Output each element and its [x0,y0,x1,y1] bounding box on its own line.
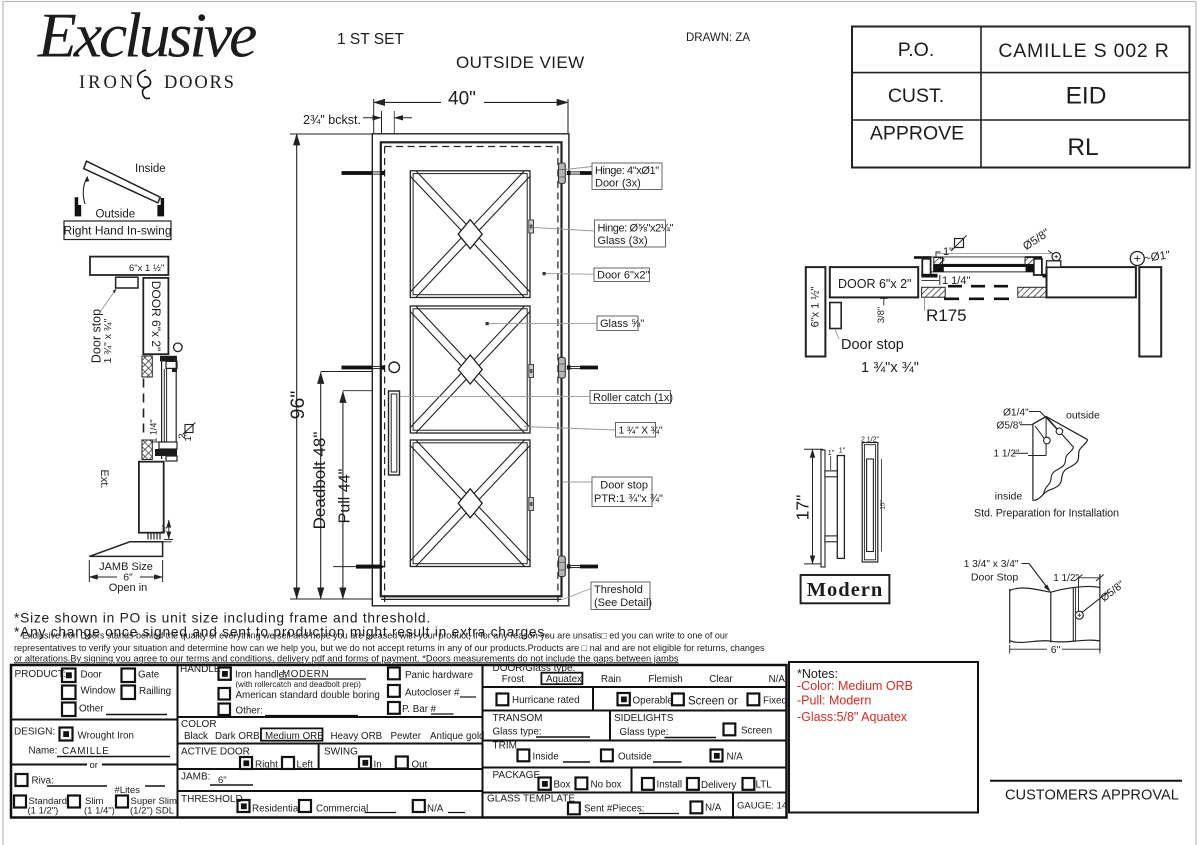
svg-text:CUST.: CUST. [888,85,944,107]
svg-text:Ø5/8": Ø5/8" [1021,227,1052,253]
svg-text:DOOR 6"x 2": DOOR 6"x 2" [149,281,163,352]
svg-text:N/A: N/A [427,804,444,815]
svg-text:Install: Install [657,780,683,791]
svg-text:1 1/4": 1 1/4" [942,275,970,287]
svg-text:outside: outside [1066,410,1100,422]
svg-text:Railling: Railling [139,686,171,697]
svg-text:Iron handle:: Iron handle: [235,670,287,681]
svg-text:Outside: Outside [618,752,652,763]
svg-text:Right: Right [255,760,278,771]
svg-text:MODERN: MODERN [282,669,329,680]
svg-text:N/A: N/A [769,674,786,685]
svg-text:Deadbolt 48": Deadbolt 48" [310,432,329,530]
svg-text:Hinge: Ø⅝"x2¼": Hinge: Ø⅝"x2¼" [598,222,674,234]
svg-text:American standard double borin: American standard double boring [236,690,380,701]
svg-text:Glass ⅝": Glass ⅝" [600,318,644,330]
svg-text:GAUGE: 14: GAUGE: 14 [737,801,787,812]
svg-text:IRON: IRON [79,73,136,93]
svg-text:PACKAGE: PACKAGE [493,770,541,781]
svg-text:N/A: N/A [727,752,744,763]
svg-text:Modern: Modern [807,579,884,601]
svg-text:DRAWN: ZA: DRAWN: ZA [686,32,750,44]
svg-text:¾": ¾" [162,524,169,533]
svg-text:Inside: Inside [533,752,560,763]
svg-text:6": 6" [1051,644,1061,656]
svg-text:3/8": 3/8" [876,307,887,324]
svg-text:N/A: N/A [705,803,722,814]
svg-text:1 3/4" x 3/4": 1 3/4" x 3/4" [964,559,1019,570]
svg-text:COLOR: COLOR [181,719,217,730]
svg-text:Delivery: Delivery [701,780,736,791]
svg-text:6"x 1 ½": 6"x 1 ½" [129,263,164,274]
svg-text:LTL: LTL [756,780,773,791]
svg-text:Out: Out [412,760,428,771]
svg-text:1 ST SET: 1 ST SET [337,31,404,48]
svg-text:1": 1" [828,448,835,457]
svg-text:In: In [374,760,382,771]
svg-text:EID: EID [1066,83,1107,110]
svg-text:Clear: Clear [709,674,733,685]
svg-text:JAMB:: JAMB: [181,772,210,783]
svg-text:Hurricane rated: Hurricane rated [512,695,580,706]
svg-text:Pull 44": Pull 44" [337,469,354,524]
svg-text:Door stop: Door stop [600,479,648,491]
svg-text:CAMILLE: CAMILLE [62,746,110,757]
svg-text:THRESHOLD: THRESHOLD [181,794,243,805]
svg-text:15": 15" [880,500,887,510]
svg-text:SWING: SWING [324,747,358,758]
svg-text:Hinge: 4"xØ1": Hinge: 4"xØ1" [595,165,659,177]
svg-text:(with rollercatch and deadbolt: (with rollercatch and deadbolt prep) [236,680,362,689]
svg-text:Screen: Screen [741,726,772,737]
svg-text:Medium ORB: Medium ORB [265,731,324,742]
svg-text:Residential: Residential [252,804,300,815]
svg-text:-Pull: Modern: -Pull: Modern [797,694,871,708]
svg-text:#Lites: #Lites [115,785,141,796]
svg-text:Commercial: Commercial [316,804,368,815]
svg-text:Door stop: Door stop [841,337,904,353]
svg-text:Roller catch (1x): Roller catch (1x) [593,392,673,404]
svg-text:1 ¾" X ¾": 1 ¾" X ¾" [619,424,663,436]
svg-text:Antique gold: Antique gold [430,731,484,742]
svg-text:P.O.: P.O. [898,39,935,61]
svg-text:-Glass:5/8" Aquatex: -Glass:5/8" Aquatex [797,710,908,724]
svg-text:Door Stop: Door Stop [971,572,1018,584]
svg-text:inside: inside [995,491,1023,503]
svg-text:DESIGN:: DESIGN: [14,727,55,738]
svg-text:Outside: Outside [96,209,136,221]
svg-text:Riva:: Riva: [32,776,54,787]
svg-text:DOOR 6"x 2": DOOR 6"x 2" [838,277,911,291]
svg-text:1": 1" [839,446,846,455]
svg-text:Ø5/8": Ø5/8" [1098,578,1126,604]
svg-text:2: 2 [939,256,945,268]
svg-text:Std. Preparation for Installat: Std. Preparation for Installation [974,508,1119,520]
svg-text:CUSTOMERS APPROVAL: CUSTOMERS APPROVAL [1005,788,1179,804]
svg-text:Sent #Pieces:: Sent #Pieces: [584,804,644,815]
svg-text:Inside: Inside [135,163,166,175]
svg-text:Glass type:: Glass type: [620,727,669,738]
svg-text:SIDELIGHTS: SIDELIGHTS [614,713,674,724]
svg-text:HANDLE: HANDLE [180,664,221,675]
svg-text:APPROVE: APPROVE [870,123,964,145]
svg-text:Door 6"x2": Door 6"x2" [597,270,650,282]
svg-text:Ø1/4": Ø1/4" [1003,408,1029,419]
svg-text:Right Hand In-swing: Right Hand In-swing [63,224,171,238]
svg-text:-Ø1": -Ø1" [1146,249,1171,264]
svg-text:PTR:1 ¾"x ¾": PTR:1 ¾"x ¾" [594,493,663,505]
svg-text:1 ¾"x ¾": 1 ¾"x ¾" [861,360,919,376]
svg-text:-Color: Medium ORB: -Color: Medium ORB [797,679,913,693]
svg-text:Panic hardware: Panic hardware [405,670,474,681]
svg-text:Black: Black [184,731,208,742]
svg-text:DOORS: DOORS [164,73,236,93]
svg-text:P. Bar #: P. Bar # [402,704,437,715]
svg-text:Flemish: Flemish [648,674,682,685]
svg-text:*Size shown in PO is unit size: *Size shown in PO is unit size including… [14,611,431,626]
svg-text:or alterations.By signing you: or alterations.By signing you agree to o… [14,653,679,663]
svg-text:or: or [90,760,98,771]
svg-text:17": 17" [793,495,813,521]
svg-text:(See Detail): (See Detail) [594,597,652,609]
svg-text:Frost: Frost [502,674,525,685]
svg-text:1 1/2": 1 1/2" [1053,573,1079,584]
svg-text:Exclusive: Exclusive [37,0,256,71]
svg-text:Name:: Name: [29,746,58,757]
svg-text:RL: RL [1067,134,1098,161]
svg-text:Dark ORB: Dark ORB [215,731,260,742]
svg-text:Wrought Iron: Wrought Iron [78,731,134,742]
svg-text:Other:: Other: [236,706,263,717]
svg-text:R175: R175 [926,306,967,325]
svg-text:representatives to verify your: representatives to verify your situation… [14,643,765,653]
svg-text:(1 1/4"): (1 1/4") [84,806,115,817]
svg-text:1 1/2": 1 1/2" [993,449,1020,460]
svg-text:2 1/2": 2 1/2" [861,437,880,444]
svg-text:Ø5/8": Ø5/8" [996,421,1022,432]
svg-text:Left: Left [297,760,314,771]
svg-text:PRODUCT:: PRODUCT: [15,669,66,680]
svg-text:Other: Other [79,704,104,715]
svg-text:TRANSOM: TRANSOM [493,713,543,724]
svg-text:96": 96" [287,391,309,420]
svg-text:(1 1/2"): (1 1/2") [28,806,59,817]
svg-text:Ext.: Ext. [98,470,110,489]
svg-text:Rain: Rain [601,674,621,685]
svg-text:ACTIVE DOOR: ACTIVE DOOR [181,747,250,758]
svg-text:(1/2") SDL: (1/2") SDL [130,806,174,817]
svg-text:Exclusive Iron Doors stands be: Exclusive Iron Doors stands behind the q… [22,631,728,641]
svg-text:Pewter: Pewter [391,731,422,742]
svg-text:GLASS TEMPLATE: GLASS TEMPLATE [487,794,575,805]
svg-text:40": 40" [448,89,476,110]
svg-text:1 ¾" x ¾": 1 ¾" x ¾" [102,318,114,363]
svg-text:Autocloser #: Autocloser # [405,688,460,699]
svg-text:Box: Box [554,780,571,791]
svg-text:Glass type:: Glass type: [493,727,542,738]
svg-text:TRIM: TRIM [493,741,517,752]
svg-text:Window: Window [81,686,117,697]
svg-text:Screen or: Screen or [688,696,738,708]
svg-text:Operable: Operable [633,696,674,707]
svg-text:6"x 1 ½": 6"x 1 ½" [810,286,822,327]
svg-text:Threshold: Threshold [594,584,643,596]
svg-text:No box: No box [591,780,622,791]
svg-text:Fixed: Fixed [763,696,787,707]
svg-text:Door (3x): Door (3x) [595,177,641,189]
svg-text:1 1/4": 1 1/4" [149,419,159,442]
svg-text:1": 1" [183,433,194,442]
svg-text:Glass (3x): Glass (3x) [598,235,648,247]
svg-text:Aquatex: Aquatex [546,674,582,685]
svg-text:Door: Door [81,670,103,681]
svg-text:2¾" bckst.: 2¾" bckst. [303,113,361,127]
svg-text:Gate: Gate [138,670,160,681]
svg-text:Open in: Open in [109,582,148,594]
svg-text:OUTSIDE VIEW: OUTSIDE VIEW [456,53,585,72]
svg-text:CAMILLE S 002 R: CAMILLE S 002 R [998,40,1169,62]
svg-text:Heavy ORB: Heavy ORB [331,731,383,742]
